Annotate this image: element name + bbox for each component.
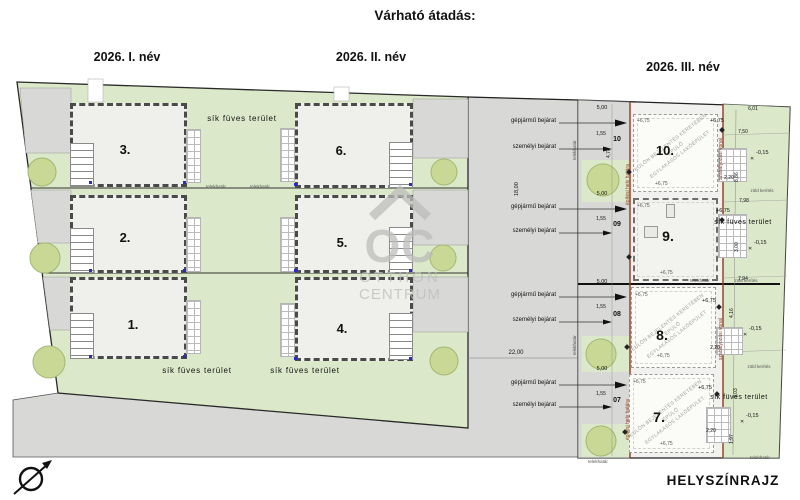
regulation-line-label: szabályozási vonal — [718, 138, 724, 180]
corner-marker — [89, 181, 92, 184]
north-arrow-icon — [14, 460, 52, 494]
gate-width-dim: 1,55 — [589, 304, 613, 310]
tree-icon — [28, 158, 56, 186]
corner-marker — [409, 183, 412, 186]
vehicle-entrance-label: gépjármű bejárat — [494, 204, 556, 210]
tree-icon — [586, 339, 616, 369]
unit-5-number: 5. — [317, 235, 367, 250]
person-entrance-label: személyi bejárat — [494, 228, 556, 234]
plot-boundary-label: telekhatár — [572, 140, 577, 160]
corner-marker — [409, 357, 412, 360]
page-title: Várható átadás: — [320, 8, 530, 23]
stair-block — [389, 142, 413, 188]
dim-label: 2,20 — [718, 175, 740, 181]
level-marker-icon — [740, 419, 744, 425]
level-label: +6,75 — [633, 379, 646, 385]
drive-width-dim: 5,00 — [589, 279, 615, 285]
unit-8-code: 08 — [608, 311, 626, 318]
drive-width-dim: 5,00 — [589, 366, 615, 372]
level-label: +6,75 — [660, 270, 673, 276]
green-fence-label: zöld kerítés — [739, 364, 779, 369]
unit-9-number: 9. — [648, 228, 688, 244]
plot-boundary-label: telekhatár — [198, 184, 234, 189]
phase-label-q3: 2026. III. név — [612, 60, 754, 74]
driveway — [20, 88, 71, 153]
person-entrance-label: személyi bejárat — [494, 144, 556, 150]
tree-icon — [586, 426, 616, 456]
level-marker-icon — [748, 246, 752, 252]
dim-label: 2,20 — [704, 345, 726, 351]
driveway — [413, 99, 468, 158]
dim-label: 1,97 — [729, 434, 735, 444]
level-label: +6,75 — [716, 208, 730, 214]
driveway — [43, 277, 71, 330]
ground-level-label: -0,15 — [749, 326, 762, 332]
tree-icon — [430, 347, 458, 375]
green-fence-label: zöld kerítés — [726, 278, 766, 283]
ground-level-label: -0,15 — [746, 413, 759, 419]
dim-label: 6,01 — [740, 106, 766, 112]
drive-width-dim: 5,00 — [589, 191, 615, 197]
unit-3-number: 3. — [100, 142, 150, 157]
plot-boundary-label: telekhatár — [242, 184, 278, 189]
corner-marker — [183, 181, 186, 184]
person-entrance-label: személyi bejárat — [494, 317, 556, 323]
stair-block — [70, 228, 94, 273]
road-width-dim: 22,00 — [496, 350, 536, 356]
driveway — [31, 190, 71, 243]
unit-10-code: 10 — [608, 136, 626, 143]
grass-label: sík füves terület — [701, 394, 777, 401]
unit-7-number: 7. — [639, 409, 679, 425]
corner-marker — [89, 269, 92, 272]
corner-marker — [183, 269, 186, 272]
dim-label: 3,00 — [734, 242, 740, 252]
vehicle-entrance-label: gépjármű bejárat — [494, 118, 556, 124]
terrace — [186, 217, 201, 272]
unit-4-number: 4. — [317, 321, 367, 336]
drawing-type-title: HELYSZÍNRAJZ — [653, 473, 793, 488]
drive-width-dim: 5,00 — [589, 105, 615, 111]
unit-2-number: 2. — [100, 230, 150, 245]
road-length-dim: 18,00 — [514, 182, 520, 196]
plot-boundary-label: telekhatár — [572, 335, 577, 355]
unit-9-code: 09 — [608, 221, 626, 228]
level-label: +6,75 — [657, 353, 670, 359]
tree-icon — [431, 159, 457, 185]
corner-marker — [89, 355, 92, 358]
stair-block — [389, 313, 413, 360]
phase-label-q1: 2026. I. név — [57, 50, 197, 64]
dim-label: 9,03 — [733, 388, 739, 398]
phase-label-q2: 2026. II. név — [300, 50, 442, 64]
unit-1-number: 1. — [108, 317, 158, 332]
plot-boundary-label: telekhatár — [742, 455, 778, 460]
level-marker-icon — [750, 156, 754, 162]
level-label: +6,75 — [698, 385, 712, 391]
unit-8-number: 8. — [642, 327, 682, 343]
corner-marker — [294, 183, 297, 186]
floorplan-detail — [666, 204, 675, 218]
terrace — [706, 407, 731, 443]
watermark-line1: OTTHON — [338, 269, 462, 286]
grass-label: sík füves terület — [705, 219, 781, 226]
level-label: +6,75 — [637, 118, 650, 124]
watermark-roof-icon — [338, 183, 462, 221]
terrace — [186, 129, 201, 183]
stair-block — [70, 313, 94, 359]
vehicle-entrance-label: gépjármű bejárat — [494, 380, 556, 386]
level-label: +6,75 — [655, 181, 668, 187]
terrace — [280, 128, 295, 182]
green-fence-label: zöld kerítés — [742, 188, 782, 193]
tree-icon — [33, 346, 65, 378]
level-label: +6,75 — [635, 292, 648, 298]
level-label: +6,75 — [637, 203, 650, 209]
entrance-gap — [334, 87, 349, 101]
corner-marker — [294, 357, 297, 360]
grass-label: sík füves terület — [248, 366, 362, 375]
plot-boundary-label: telekhatár — [580, 459, 616, 464]
unit-6-number: 6. — [316, 143, 366, 158]
regulation-line-label: szabályozási vonal — [718, 318, 724, 360]
ground-level-label: -0,15 — [754, 240, 767, 246]
corner-marker — [409, 269, 412, 272]
terrace — [280, 303, 295, 357]
corner-marker — [294, 269, 297, 272]
terrace — [186, 300, 201, 354]
level-label: +6,75 — [702, 298, 716, 304]
entrance-gap — [88, 79, 103, 102]
ground-level-label: -0,15 — [756, 150, 769, 156]
corner-marker — [183, 355, 186, 358]
watermark-line2: CENTRUM — [338, 286, 462, 303]
vehicle-entrance-label: gépjármű bejárat — [494, 292, 556, 298]
level-label: +6,75 — [710, 118, 724, 124]
person-entrance-label: személyi bejárat — [494, 402, 556, 408]
dim-label: 7,98 — [731, 198, 757, 204]
tree-icon — [30, 243, 60, 273]
grass-label: sík füves terület — [140, 366, 254, 375]
plot-boundary-label: telekhatár — [682, 278, 718, 283]
terrace — [280, 217, 295, 272]
level-label: +6,75 — [660, 441, 673, 447]
grass-label: sík füves terület — [185, 114, 299, 123]
unit-10-number: 10. — [645, 143, 685, 158]
dim-label: 2,20 — [700, 428, 722, 434]
level-marker-icon — [743, 332, 747, 338]
drive-depth-dim: 4,78 — [606, 148, 612, 158]
unit-7-code: 07 — [608, 397, 626, 404]
dim-label: 4,16 — [729, 308, 735, 318]
dim-label: 7,50 — [730, 129, 756, 135]
